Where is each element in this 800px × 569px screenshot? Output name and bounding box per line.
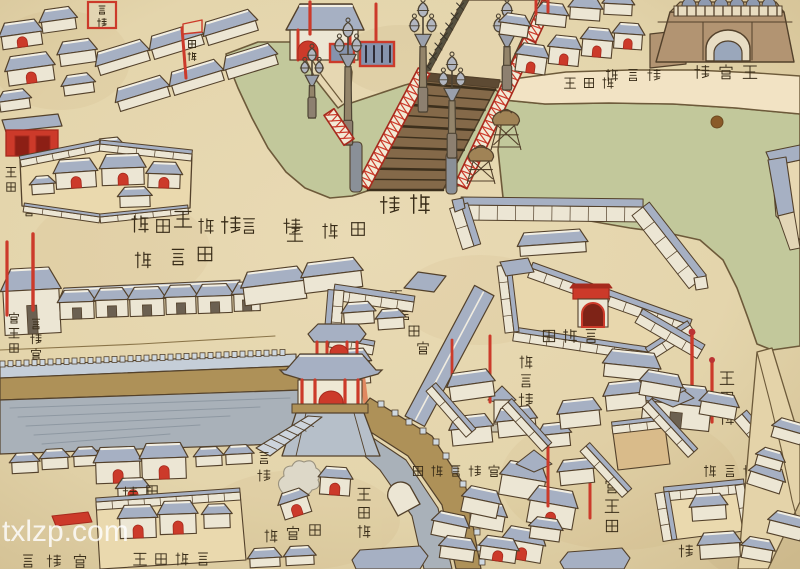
svg-text:txlzp.com: txlzp.com xyxy=(2,515,129,548)
